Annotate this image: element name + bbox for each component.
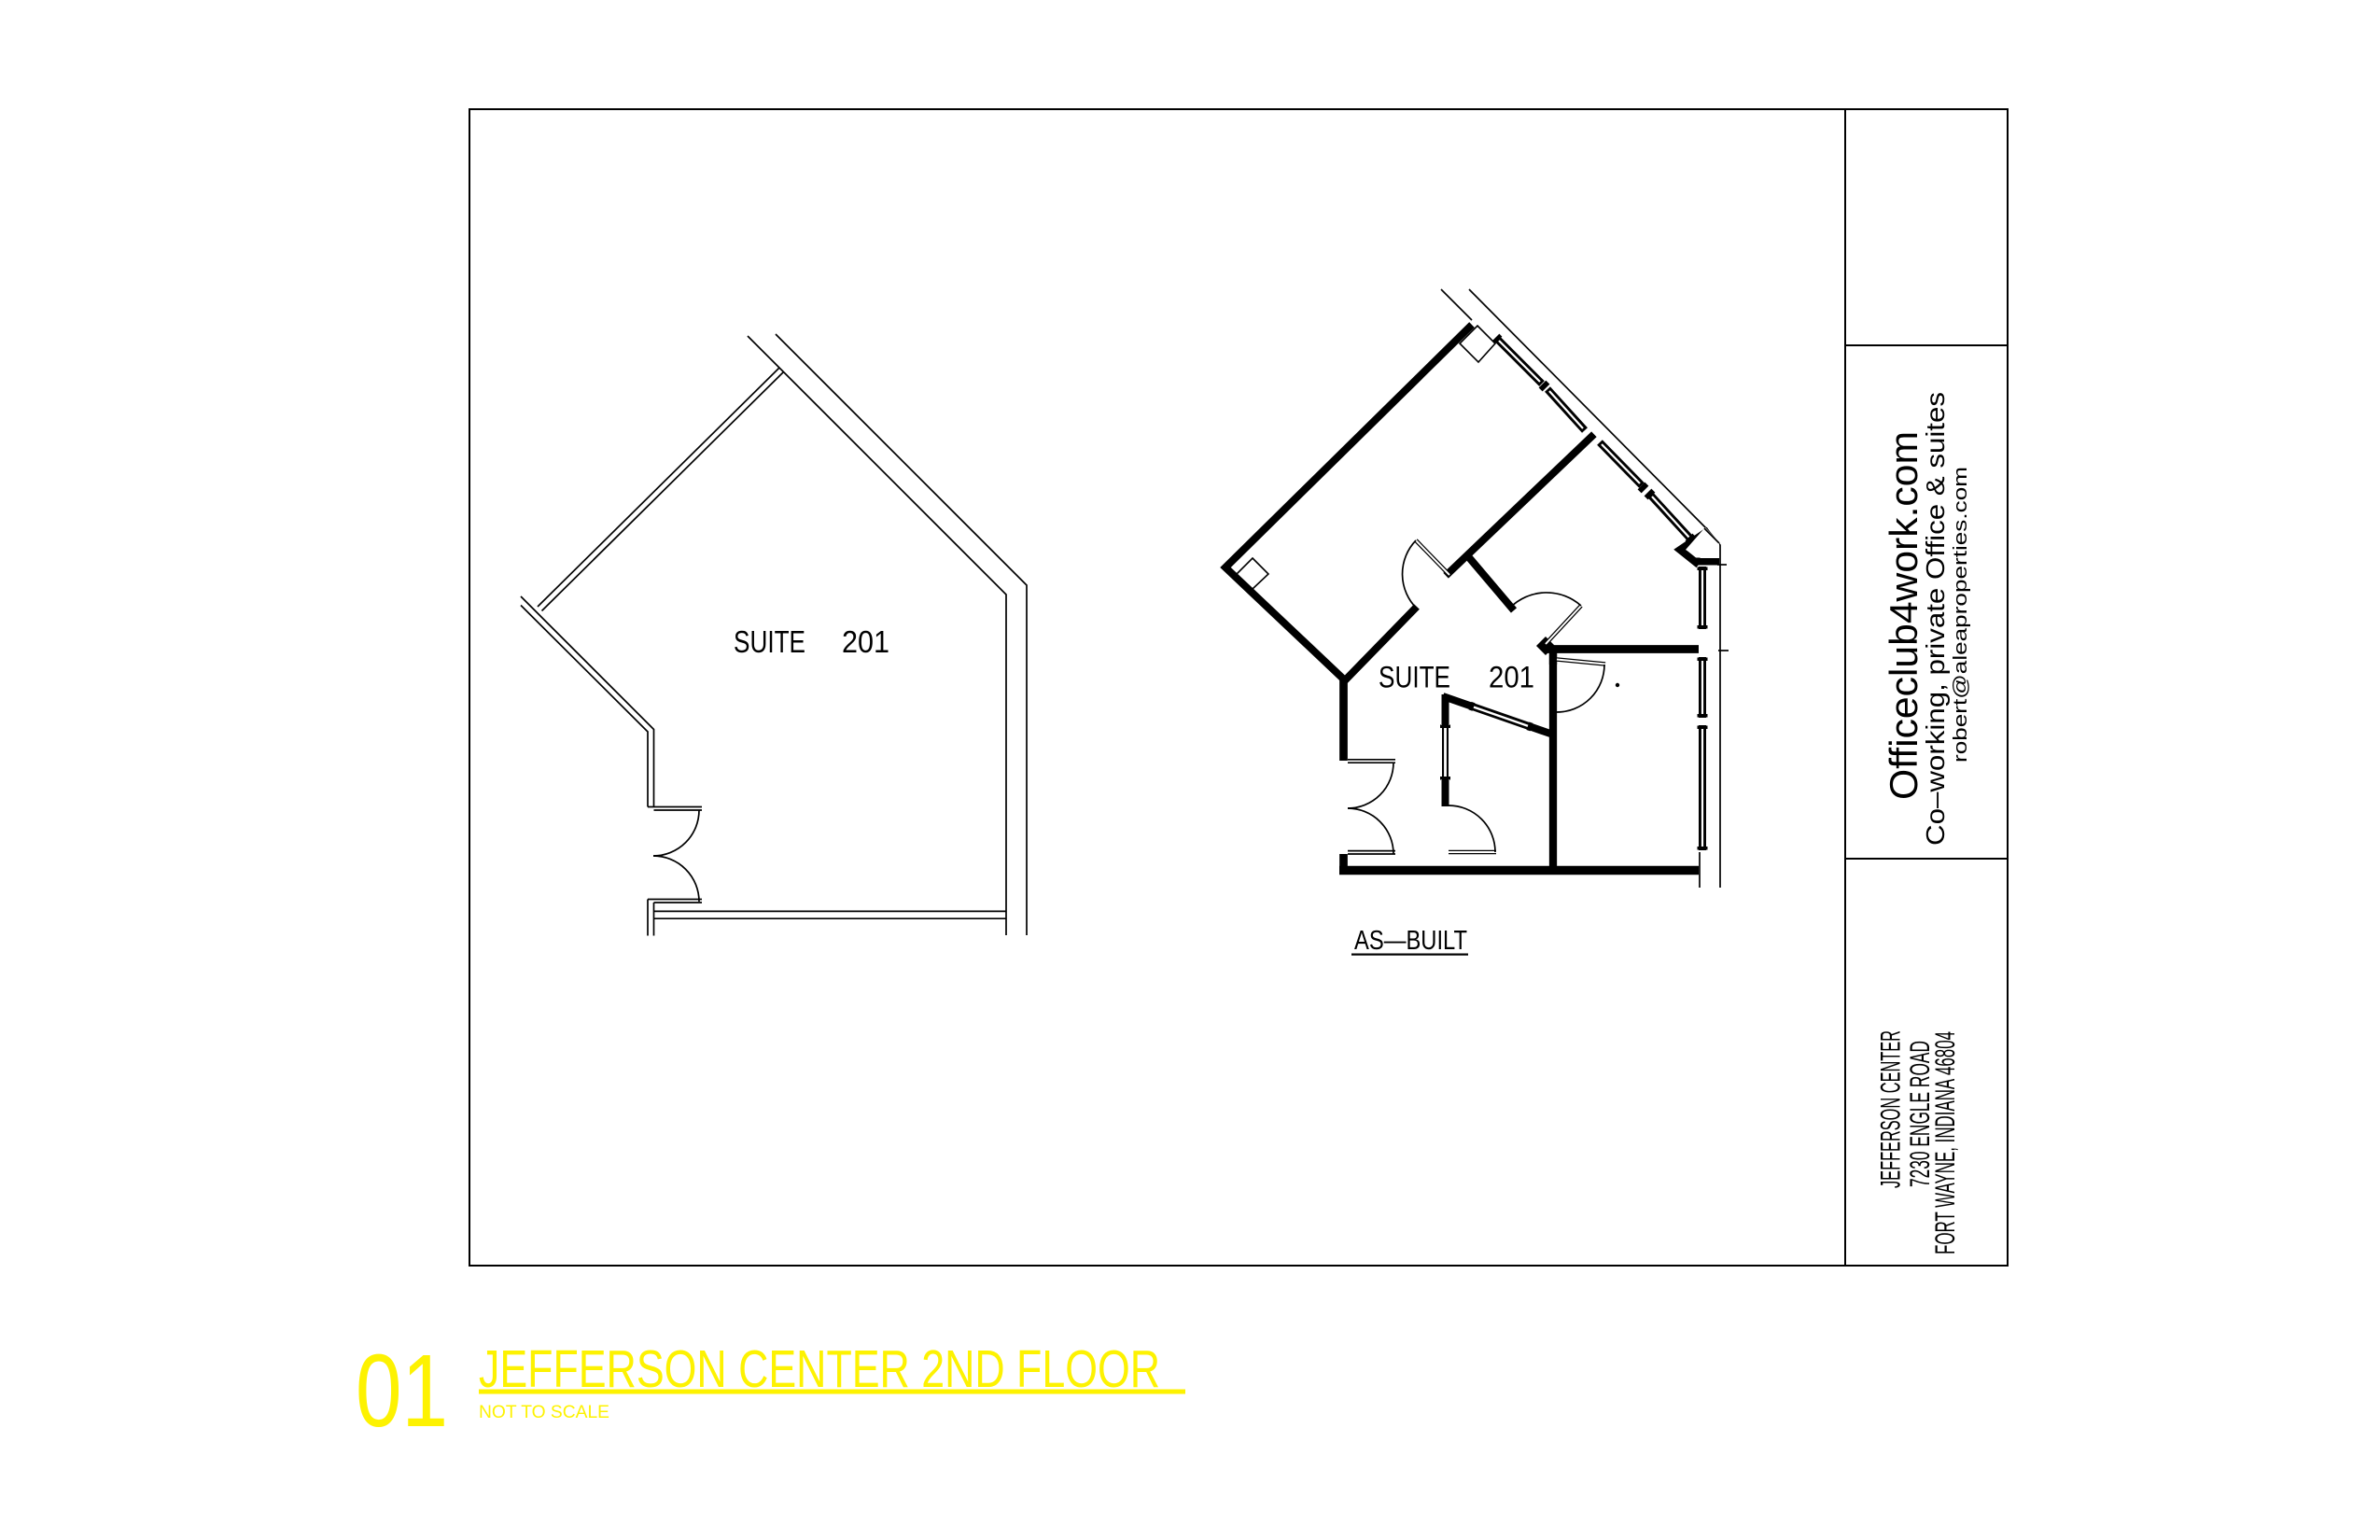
svg-text:FORT WAYNE, INDIANA 46804: FORT WAYNE, INDIANA 46804 — [1930, 1031, 1961, 1254]
svg-text:SUITE: SUITE — [734, 624, 805, 659]
svg-text:201: 201 — [842, 624, 889, 659]
svg-text:AS—BUILT: AS—BUILT — [1354, 926, 1467, 956]
svg-text:NOT TO SCALE: NOT TO SCALE — [479, 1402, 609, 1422]
svg-text:Officeclub4work.com: Officeclub4work.com — [1882, 431, 1925, 800]
svg-text:01: 01 — [356, 1334, 448, 1449]
svg-text:201: 201 — [1489, 661, 1534, 694]
svg-text:JEFFERSON CENTER: JEFFERSON CENTER — [1876, 1030, 1907, 1188]
svg-text:Co–working, private Office & s: Co–working, private Office & suites — [1921, 392, 1950, 846]
svg-text:SUITE: SUITE — [1379, 661, 1450, 694]
svg-text:robert@aleaproperties.com: robert@aleaproperties.com — [1950, 467, 1971, 763]
